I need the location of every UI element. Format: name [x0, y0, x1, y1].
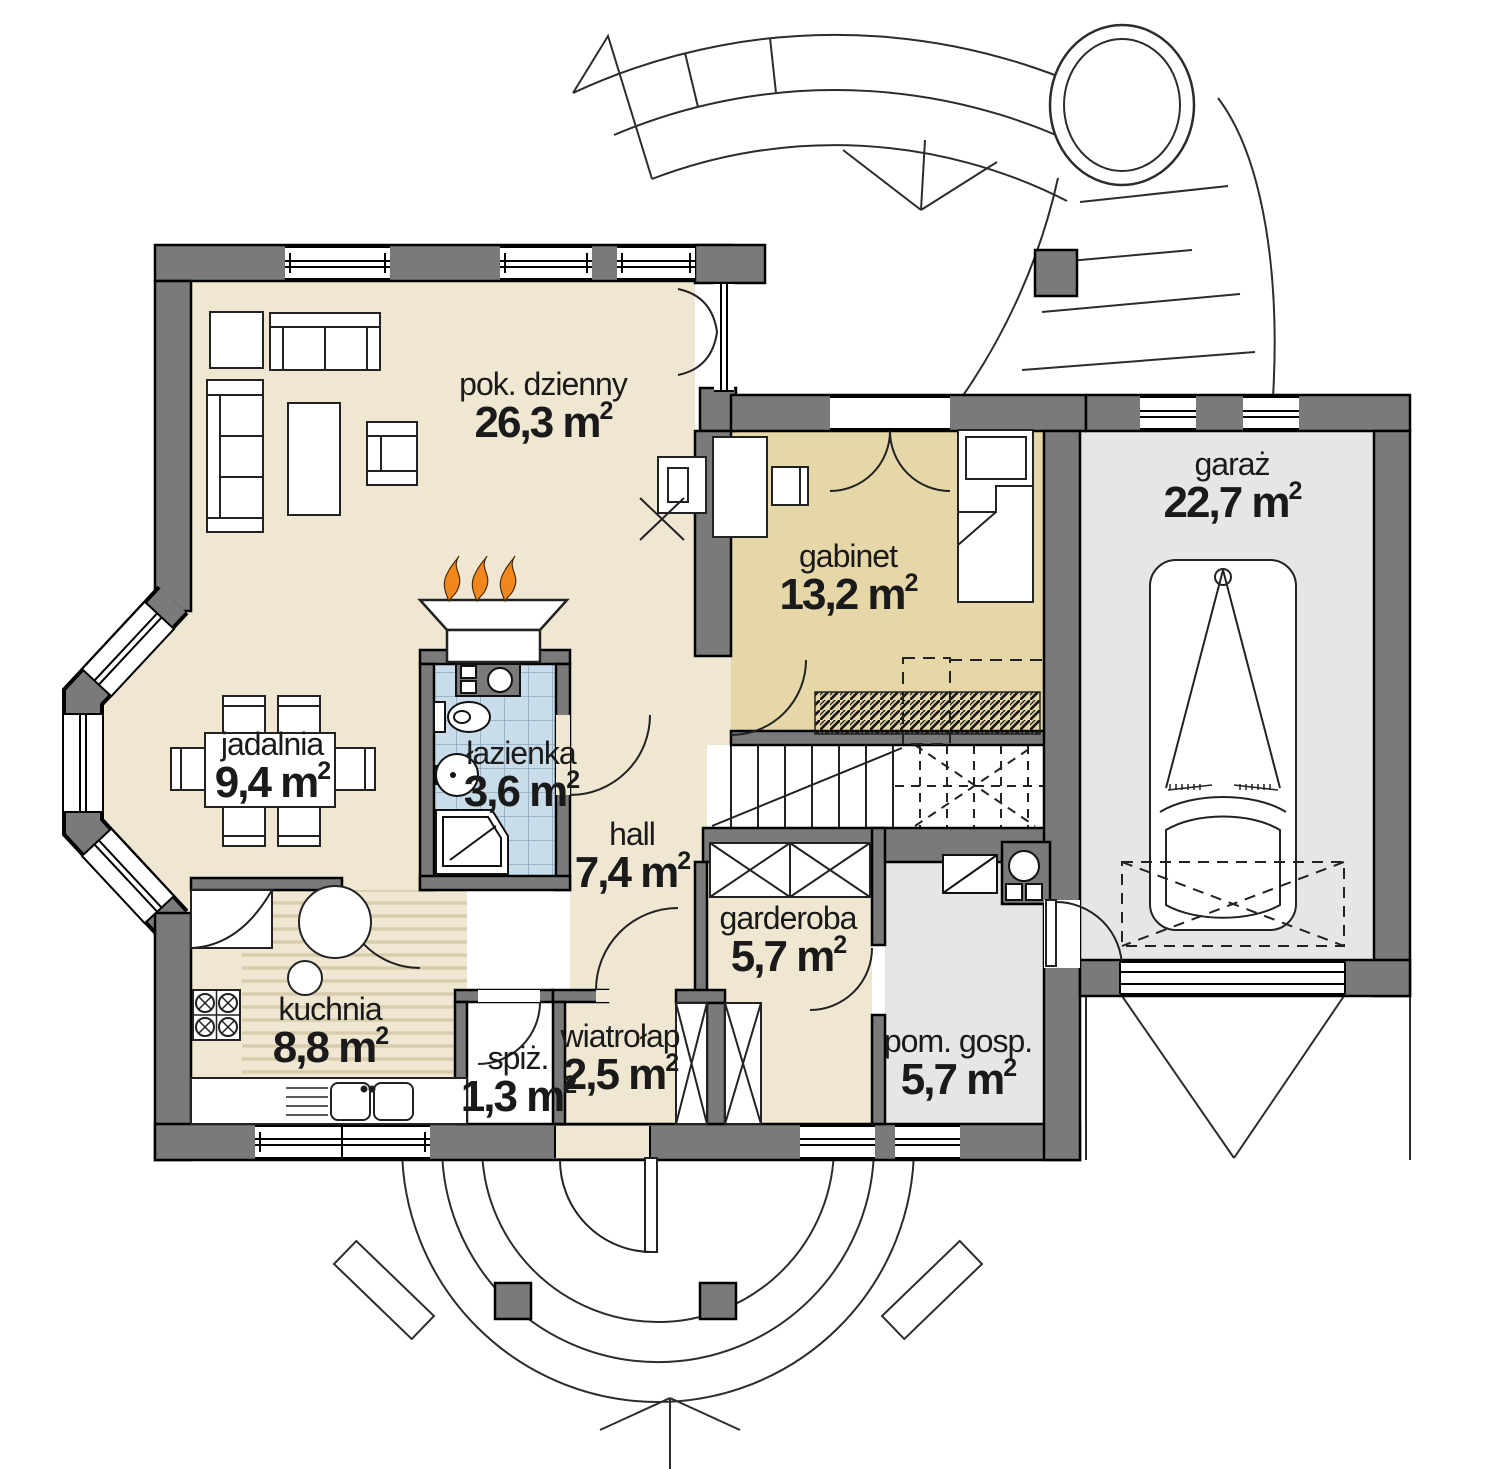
porch-pillar-right	[700, 1283, 736, 1319]
room-area: 5,7 m2	[884, 1058, 1032, 1103]
room-area: 13,2 m2	[780, 573, 917, 618]
wall-corner-terrace-top	[695, 245, 765, 283]
room-area: 5,7 m2	[720, 935, 857, 980]
desk-chair	[772, 467, 808, 505]
garage-apron	[1086, 996, 1410, 1160]
wall-garage-left	[1044, 431, 1080, 1160]
label-garderoba: garderoba 5,7 m2	[720, 902, 857, 980]
garage-gate	[1120, 962, 1345, 994]
chair	[278, 805, 320, 846]
wall-wiatrolap-top-right	[676, 990, 725, 1003]
washer-detail-1	[461, 666, 476, 678]
room-name: hall	[575, 818, 689, 851]
kitchen-table-round	[299, 886, 371, 958]
room-area: 1,3 m2	[461, 1075, 575, 1120]
wall-bath-left	[420, 664, 434, 890]
stove-icon	[193, 990, 240, 1040]
chair	[223, 805, 265, 846]
radiator-hatched	[815, 692, 1040, 734]
utility-box-1	[1006, 884, 1022, 900]
room-name: pom. gosp.	[884, 1025, 1032, 1058]
kitchen-counter	[191, 1078, 467, 1124]
sink-drain	[451, 773, 455, 777]
room-area: 26,3 m2	[459, 401, 627, 446]
room-area: 3,6 m2	[464, 770, 578, 815]
kitchen-stool	[288, 961, 322, 995]
bed-pillow	[966, 437, 1026, 479]
room-name: garderoba	[720, 902, 857, 935]
window-living-top-3	[617, 247, 695, 279]
room-name: kuchnia	[273, 993, 387, 1026]
side-cabinet-inner	[668, 468, 688, 502]
window-garage-2	[1243, 397, 1299, 429]
room-name: wiatrołap	[560, 1020, 679, 1053]
window-living-top-1	[285, 247, 390, 279]
window-pomgosp-bottom	[895, 1126, 960, 1158]
tv-armchair	[367, 422, 417, 485]
desk	[713, 437, 767, 537]
shower-icon	[436, 810, 508, 874]
wall-garage-right	[1374, 431, 1410, 996]
room-area: 8,8 m2	[273, 1026, 387, 1071]
floor-plan-page: pok. dzienny 26,3 m2 gabinet 13,2 m2 gar…	[0, 0, 1488, 1469]
living-room-floor	[191, 281, 695, 651]
window-corridor-bottom	[800, 1126, 875, 1158]
pomgosp-fixtures	[943, 851, 1042, 900]
armchair	[210, 312, 263, 368]
label-spiz: spiż. 1,3 m2	[461, 1042, 575, 1120]
label-kuchnia: kuchnia 8,8 m2	[273, 993, 387, 1071]
coffee-table	[288, 403, 340, 515]
label-wiatrolap: wiatrołap 2,5 m2	[560, 1020, 679, 1098]
gabinet-door-nook	[695, 651, 731, 746]
sofa-three-seat	[207, 380, 263, 532]
room-name: spiż.	[461, 1042, 575, 1075]
porch-pillar-left	[495, 1283, 531, 1319]
room-name: jadalnia	[215, 728, 329, 761]
washer-detail-2	[461, 681, 476, 693]
wall-hall-garderoba	[695, 862, 707, 1002]
room-area: 7,4 m2	[575, 851, 689, 896]
label-hall: hall 7,4 m2	[575, 818, 689, 896]
wall-wiatrolap-garderoba	[707, 1003, 725, 1124]
chair	[334, 748, 375, 790]
label-garaz: garaż 22,7 m2	[1164, 448, 1301, 526]
label-gabinet: gabinet 13,2 m2	[780, 540, 917, 618]
room-name: gabinet	[780, 540, 917, 573]
wall-garderoba-pomgosp-top	[872, 828, 885, 945]
washer-icon	[488, 668, 512, 692]
room-area: 22,7 m2	[1164, 481, 1301, 526]
label-jadalnia: jadalnia 9,4 m2	[215, 728, 329, 806]
window-kitchen-bottom	[255, 1126, 430, 1158]
toilet-tank	[434, 702, 445, 732]
car-body	[1150, 560, 1296, 930]
wall-living-left	[155, 281, 191, 611]
wall-bath-bottom	[420, 876, 570, 890]
terrace-pillar	[1035, 250, 1077, 296]
window-garage-1	[1140, 397, 1196, 429]
boiler-icon	[1009, 851, 1039, 881]
window-bay-middle	[63, 714, 103, 812]
toilet-bowl	[454, 711, 470, 723]
room-area: 2,5 m2	[560, 1053, 679, 1098]
utility-box-2	[1026, 884, 1042, 900]
room-name: garaż	[1164, 448, 1301, 481]
label-pom-gosp: pom. gosp. 5,7 m2	[884, 1025, 1032, 1103]
label-pok-dzienny: pok. dzienny 26,3 m2	[459, 368, 627, 446]
room-name: łazienka	[464, 737, 578, 770]
wall-kitchen-top	[191, 878, 342, 890]
front-door-arc	[560, 1160, 651, 1252]
room-area: 9,4 m2	[215, 761, 329, 806]
round-feature	[1050, 25, 1194, 185]
label-lazienka: łazienka 3,6 m2	[464, 737, 578, 815]
corner-counter	[191, 890, 272, 948]
room-name: pok. dzienny	[459, 368, 627, 401]
window-living-top-2	[500, 247, 592, 279]
